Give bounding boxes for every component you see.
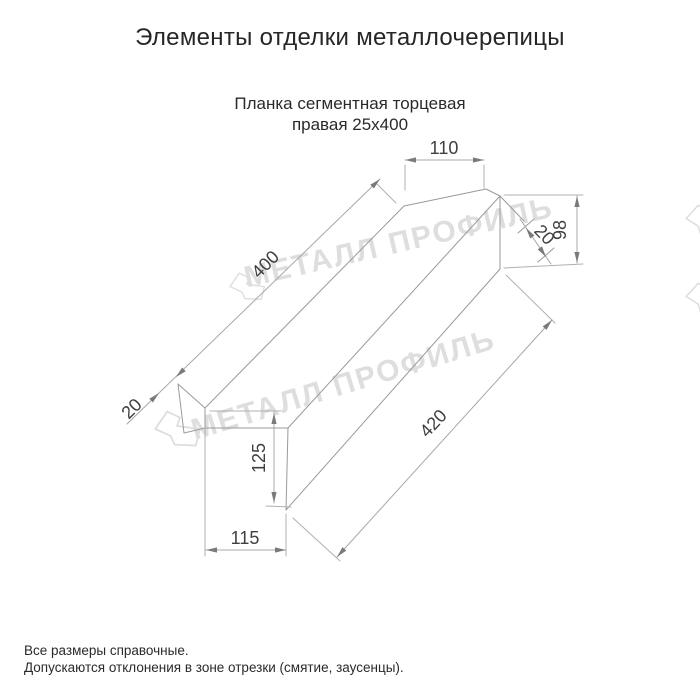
metall-profil-logo-icon (686, 205, 700, 237)
edge-top-to-cap (486, 189, 500, 196)
arrowhead-icon (275, 547, 286, 552)
metall-profil-logo-icon (686, 283, 700, 315)
arrowhead-icon (538, 246, 548, 258)
technical-drawing: МЕТАЛЛ ПРОФИЛЬ МЕТАЛЛ ПРОФИЛЬ (0, 0, 700, 700)
dimension-value: 115 (231, 528, 260, 548)
extension-line (504, 264, 583, 268)
extension-line (266, 506, 291, 507)
dimension-value: 110 (430, 138, 459, 158)
dimension-110: 110 (405, 138, 484, 190)
arrowhead-icon (574, 252, 579, 263)
note-line-1: Все размеры справочные. (24, 642, 404, 659)
start-fold-top-edge (178, 384, 205, 408)
watermark-edge-remnants (686, 205, 700, 315)
arrowhead-icon (271, 492, 276, 503)
dimension-420: 420 (293, 275, 555, 561)
arrowhead-icon (206, 547, 217, 552)
drawing-page: Элементы отделки металлочерепицы Планка … (0, 0, 700, 700)
dimension-value: 125 (249, 443, 269, 473)
arrowhead-icon (574, 196, 579, 207)
note-line-2: Допускаются отклонения в зоне отрезки (с… (24, 659, 404, 676)
footer-notes: Все размеры справочные. Допускаются откл… (24, 642, 404, 676)
dimension-20-start: 20 (117, 391, 160, 423)
arrowhead-icon (473, 157, 484, 162)
extension-line (293, 518, 340, 561)
dimension-value: 20 (117, 394, 145, 422)
dimension-value: 420 (416, 406, 451, 442)
arrowhead-icon (405, 157, 416, 162)
edge-top-segment (404, 189, 486, 206)
cut-edge-front-face (286, 428, 288, 510)
extension-line (377, 184, 396, 203)
extension-line (506, 275, 555, 323)
watermark-upper: МЕТАЛЛ ПРОФИЛЬ (228, 191, 556, 303)
